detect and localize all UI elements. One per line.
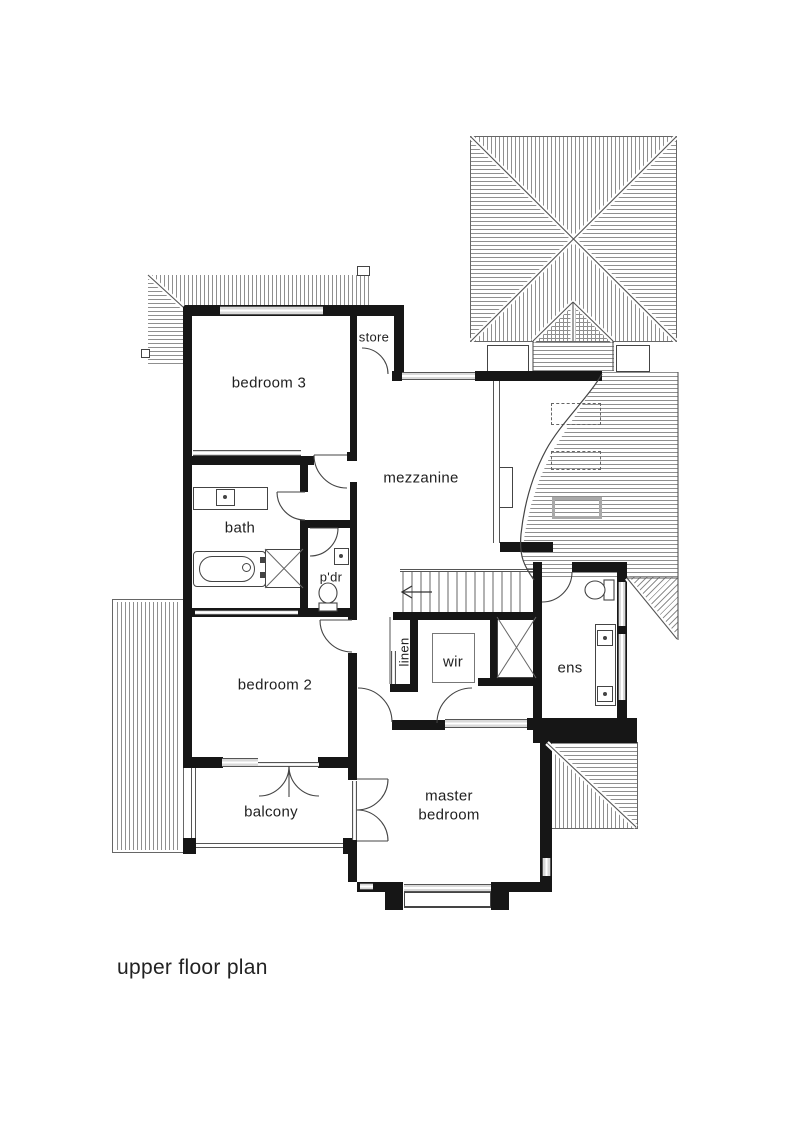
room-label-ens: ens <box>557 660 582 677</box>
wall-segment <box>343 838 357 854</box>
void-pier <box>499 467 513 508</box>
clerestory-window-left <box>487 345 529 372</box>
wall-segment <box>475 371 602 381</box>
wall-segment <box>392 720 445 730</box>
roof-hip-corner-right <box>627 577 678 639</box>
wall-segment <box>478 678 537 686</box>
wall-segment <box>300 461 308 492</box>
toilet-ens-cistern <box>604 580 614 600</box>
door-arc-bedroom2 <box>320 620 352 652</box>
plan-title: upper floor plan <box>117 956 268 980</box>
wall-segment <box>350 482 357 612</box>
eave-left-middle <box>113 600 183 852</box>
door-arc-balcony-left <box>259 766 289 796</box>
door-arc-master-balcony-bottom <box>357 810 388 841</box>
wall-segment <box>491 882 509 910</box>
door-arc-bedroom3 <box>314 455 347 488</box>
wall-segment <box>509 882 552 892</box>
window-band <box>618 582 626 626</box>
room-label-store: store <box>359 330 389 345</box>
window-band <box>402 372 475 380</box>
wall-segment <box>347 452 357 461</box>
robe-band <box>445 719 527 728</box>
door-arc-balcony-right <box>289 766 319 796</box>
stair-arrow <box>402 586 432 598</box>
wall-segment <box>490 617 497 678</box>
stairs-top-edge <box>400 569 533 572</box>
shower-bath <box>265 549 303 588</box>
window-band <box>618 634 626 700</box>
basin-bath-tap <box>223 495 227 499</box>
wall-segment <box>500 542 553 552</box>
void-dashed-object-1 <box>551 403 601 425</box>
wall-segment <box>385 882 403 910</box>
linen-door-band <box>391 651 396 684</box>
door-sill <box>352 781 357 840</box>
door-arc-master-hall <box>358 688 392 722</box>
room-label-pdr: p'dr <box>320 570 342 585</box>
void-dashed-object-2 <box>551 451 601 470</box>
wall-segment <box>183 838 196 854</box>
eave-band-top-left <box>148 275 370 307</box>
robe-band <box>193 450 301 456</box>
wall-segment <box>394 305 404 380</box>
wall-segment <box>303 520 357 528</box>
wall-segment <box>318 757 357 768</box>
wall-segment <box>572 562 618 572</box>
bay-window-band <box>404 884 491 892</box>
floor-plan-canvas: bedroom 3 store mezzanine bath p'dr line… <box>0 0 800 1131</box>
roof-vent <box>357 266 370 276</box>
toilet-pdr-bowl <box>319 583 337 603</box>
room-label-bedroom2: bedroom 2 <box>238 677 312 694</box>
wall-segment <box>183 305 192 768</box>
room-label-bath: bath <box>225 520 255 537</box>
roof-lower-right <box>547 743 637 828</box>
void-solid-object <box>552 497 602 519</box>
balcony-rail-left <box>191 768 196 839</box>
basin-ens-2-tap <box>603 692 607 696</box>
wall-segment <box>350 316 357 452</box>
door-arc-master-balcony-top <box>357 779 388 810</box>
door-arc-bath <box>277 492 305 520</box>
wall-segment <box>183 757 223 768</box>
door-arc-store <box>362 348 388 374</box>
eave-stripes <box>117 602 179 850</box>
room-label-linen: linen <box>397 638 412 667</box>
window-band <box>220 306 323 315</box>
wall-segment <box>533 562 542 722</box>
downpipe <box>141 349 150 358</box>
window-band <box>222 758 258 767</box>
window-band <box>360 883 373 890</box>
bathtub-drain <box>242 563 251 572</box>
wall-segment <box>527 718 540 730</box>
room-label-wir: wir <box>443 654 463 671</box>
basin-pdr-tap <box>339 554 343 558</box>
mezzanine-balustrade <box>493 380 500 543</box>
wall-segment <box>300 520 308 612</box>
wall-segment <box>540 730 552 876</box>
room-label-balcony: balcony <box>244 804 298 821</box>
room-label-mezzanine: mezzanine <box>383 470 458 487</box>
wall-segment <box>348 608 357 620</box>
clerestory-window-right <box>616 345 650 372</box>
bay-window-box <box>404 892 491 908</box>
balcony-rail-bottom <box>196 843 344 848</box>
wall-segment <box>188 456 314 465</box>
door-arc-wir <box>437 688 472 723</box>
room-label-bedroom3: bedroom 3 <box>232 375 306 392</box>
wall-segment <box>392 371 402 381</box>
robe-band <box>195 610 298 615</box>
window-band <box>542 858 551 876</box>
room-label-master: master bedroom <box>404 787 494 825</box>
shower-ens <box>497 617 536 678</box>
basin-ens-1-tap <box>603 636 607 640</box>
door-sill <box>258 762 319 767</box>
toilet-ens-bowl <box>585 581 605 599</box>
stair-treads <box>403 572 520 612</box>
wall-segment <box>390 684 418 692</box>
